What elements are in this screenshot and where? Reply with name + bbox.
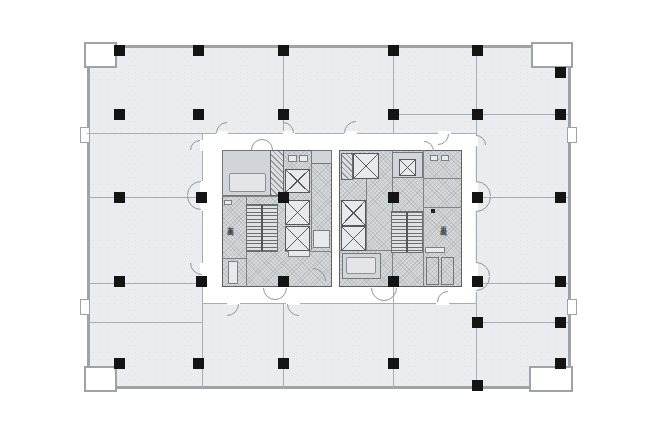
partition-wall [87,133,476,134]
balcony-tab [80,299,90,315]
structural-column [388,109,399,120]
partition-wall [87,322,202,323]
restroom-fixture [431,209,435,213]
balcony-tab [567,299,577,315]
partition-wall [202,133,203,389]
restroom-fixture [425,247,445,253]
men-restroom-label: 男卫生间 [439,221,446,225]
structural-column [472,380,483,391]
structural-column [278,192,289,203]
elevator-shaft [285,169,310,193]
structural-column [555,317,566,328]
elevator-shaft [285,200,310,225]
restroom-fixture [441,155,449,161]
table [346,257,376,274]
balcony-tab [567,127,577,143]
core-wall-line [311,150,312,250]
core-room [311,150,332,164]
structural-column [196,276,207,287]
restroom-fixture [441,257,454,285]
structural-column [114,276,125,287]
restroom-fixture [299,155,308,162]
partition-wall [393,287,394,389]
restroom-fixture [430,155,438,161]
restroom-fixture [288,250,310,257]
corner-notch [84,42,117,68]
restroom-fixture [288,155,297,162]
structural-column [278,109,289,120]
women-restroom-label: 女卫生间 [226,221,233,225]
core-wall-line [423,150,424,287]
corner-notch [529,366,573,392]
structural-column [555,358,566,369]
structural-column [555,67,566,78]
structural-column [555,192,566,203]
partition-wall [202,303,476,304]
structural-column [472,276,483,287]
elevator-shaft [341,226,366,251]
core-wall-line [423,207,462,208]
structural-column [388,276,399,287]
restroom-fixture [426,257,439,285]
structural-column [193,358,204,369]
structural-column [278,276,289,287]
structural-column [193,45,204,56]
structural-column [193,109,204,120]
core-wall-line [222,196,285,197]
restroom-fixture [224,200,232,205]
structural-column [196,192,207,203]
partition-wall [87,197,202,198]
core-wall-line [222,258,246,259]
elevator-shaft [353,153,379,179]
restroom-fixture [341,153,353,180]
corner-notch [84,366,117,392]
structural-column [278,358,289,369]
structural-column [388,45,399,56]
structural-column [472,317,483,328]
elevator-shaft [399,159,416,176]
door-opening [200,140,204,151]
restroom-fixture [313,230,330,248]
structural-column [114,358,125,369]
staircase [391,211,423,253]
structural-column [472,192,483,203]
structural-column [555,109,566,120]
partition-wall [283,303,284,389]
staircase [246,204,278,252]
structural-column [472,109,483,120]
elevator-shaft [341,200,366,226]
structural-column [555,276,566,287]
structural-column [114,109,125,120]
partition-wall [87,283,202,284]
elevator-shaft [285,226,310,251]
partition-wall [476,45,477,389]
structural-column [114,45,125,56]
balcony-tab [80,127,90,143]
restroom-fixture [228,261,238,284]
core-wall-line [423,178,462,179]
corner-notch [531,42,573,68]
structural-column [472,45,483,56]
structural-column [388,358,399,369]
restroom-fixture [270,150,284,196]
structural-column [114,192,125,203]
floor-plan-image: 女卫生间 男卫生间 [0,0,660,440]
table [229,173,266,192]
structural-column [388,192,399,203]
structural-column [278,45,289,56]
